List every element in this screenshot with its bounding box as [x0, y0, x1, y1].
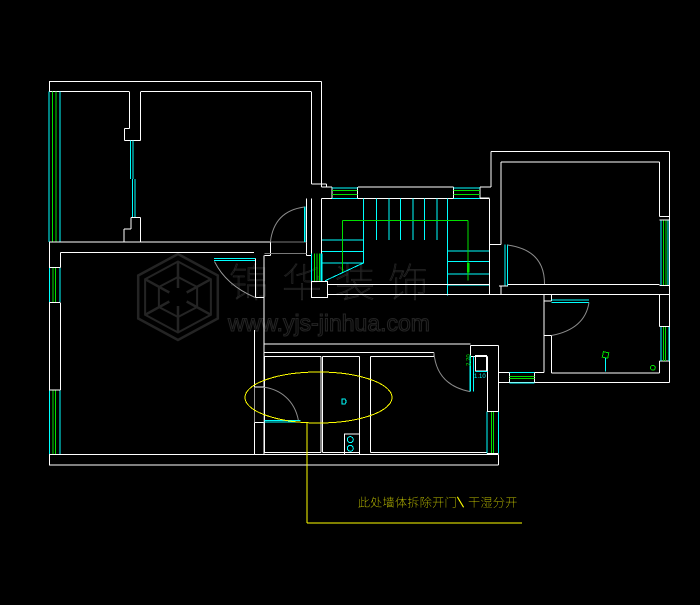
svg-text:www.yjs-jinhua.com: www.yjs-jinhua.com	[227, 310, 430, 336]
svg-text:2.20: 2.20	[467, 354, 473, 366]
svg-text:1.10: 1.10	[474, 374, 486, 380]
